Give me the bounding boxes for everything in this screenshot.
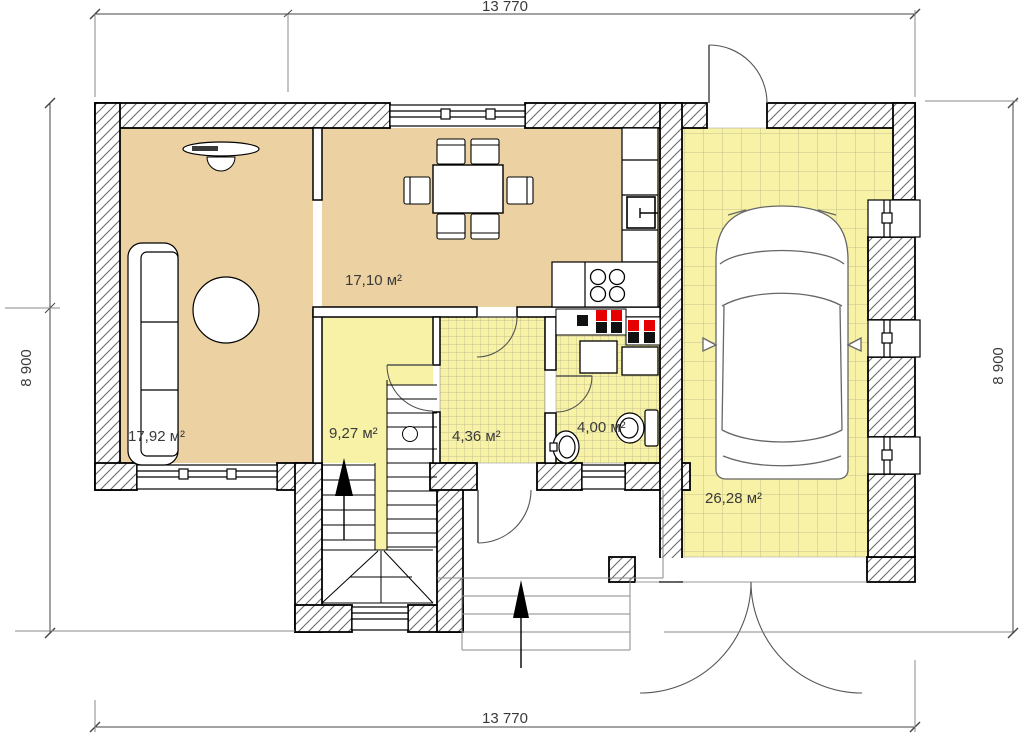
stair-newel-icon [403, 427, 418, 442]
wall-garage-right-top [893, 103, 915, 200]
wall-garage-right-b [868, 357, 915, 437]
coffee-table [193, 277, 259, 343]
garage-gate [635, 558, 867, 693]
wall-porch-b [537, 463, 582, 490]
living-room-label: 17,92 м² [128, 428, 185, 445]
dimension-right-label: 8 900 [990, 347, 1007, 385]
dimension-top: 13 770 [90, 0, 920, 97]
wall-garage-bottom-right [867, 557, 915, 582]
window-kitchen-top-icon [390, 105, 525, 126]
kitchen-sink-icon [627, 197, 658, 228]
hallway-label: 9,27 м² [329, 425, 378, 442]
wall-stairbay-bottom-a [295, 605, 352, 632]
car-icon [703, 206, 861, 479]
partition-kitchen-south-a [313, 307, 477, 317]
floor-plan-drawing: 17,92 м² 17,10 м² 9,27 м² 4,36 м² 4,00 м… [0, 0, 1024, 745]
partition-hall-storage-a [433, 317, 440, 365]
window-garage-3-icon [868, 437, 920, 474]
partition-living-kitchen [313, 128, 322, 200]
storage-label: 4,36 м² [452, 428, 501, 445]
cabinet [622, 347, 658, 375]
entrance-steps [462, 578, 630, 650]
dimension-bottom-label: 13 770 [482, 710, 528, 727]
window-stair-icon [352, 607, 408, 630]
window-garage-2-icon [868, 320, 920, 357]
dimension-top-label: 13 770 [482, 0, 528, 15]
dimension-left-label: 8 900 [18, 349, 35, 387]
partition-storage-bath-a [545, 317, 556, 370]
bathroom-label: 4,00 м² [577, 419, 626, 436]
wall-left [95, 103, 120, 490]
window-garage-1-icon [868, 200, 920, 237]
kitchen-label: 17,10 м² [345, 272, 402, 289]
garage-label: 26,28 м² [705, 490, 762, 507]
window-porch-icon [582, 465, 625, 489]
wall-top-left [95, 103, 390, 128]
floor-plan-canvas: 17,92 м² 17,10 м² 9,27 м² 4,36 м² 4,00 м… [0, 0, 1024, 745]
partition-hall-storage-b [433, 412, 440, 463]
wall-garage-right-a [868, 237, 915, 320]
garage-side-door [708, 45, 767, 127]
partition-living-hall [313, 310, 322, 463]
wall-garage-right-c [868, 474, 915, 557]
dimension-right: 8 900 [925, 98, 1018, 638]
washing-machine [580, 341, 617, 373]
window-living-bottom-icon [137, 465, 277, 489]
wall-bottom-living-a [95, 463, 137, 490]
steps-up-arrow-icon [513, 580, 529, 668]
wall-porch-a [430, 463, 477, 490]
